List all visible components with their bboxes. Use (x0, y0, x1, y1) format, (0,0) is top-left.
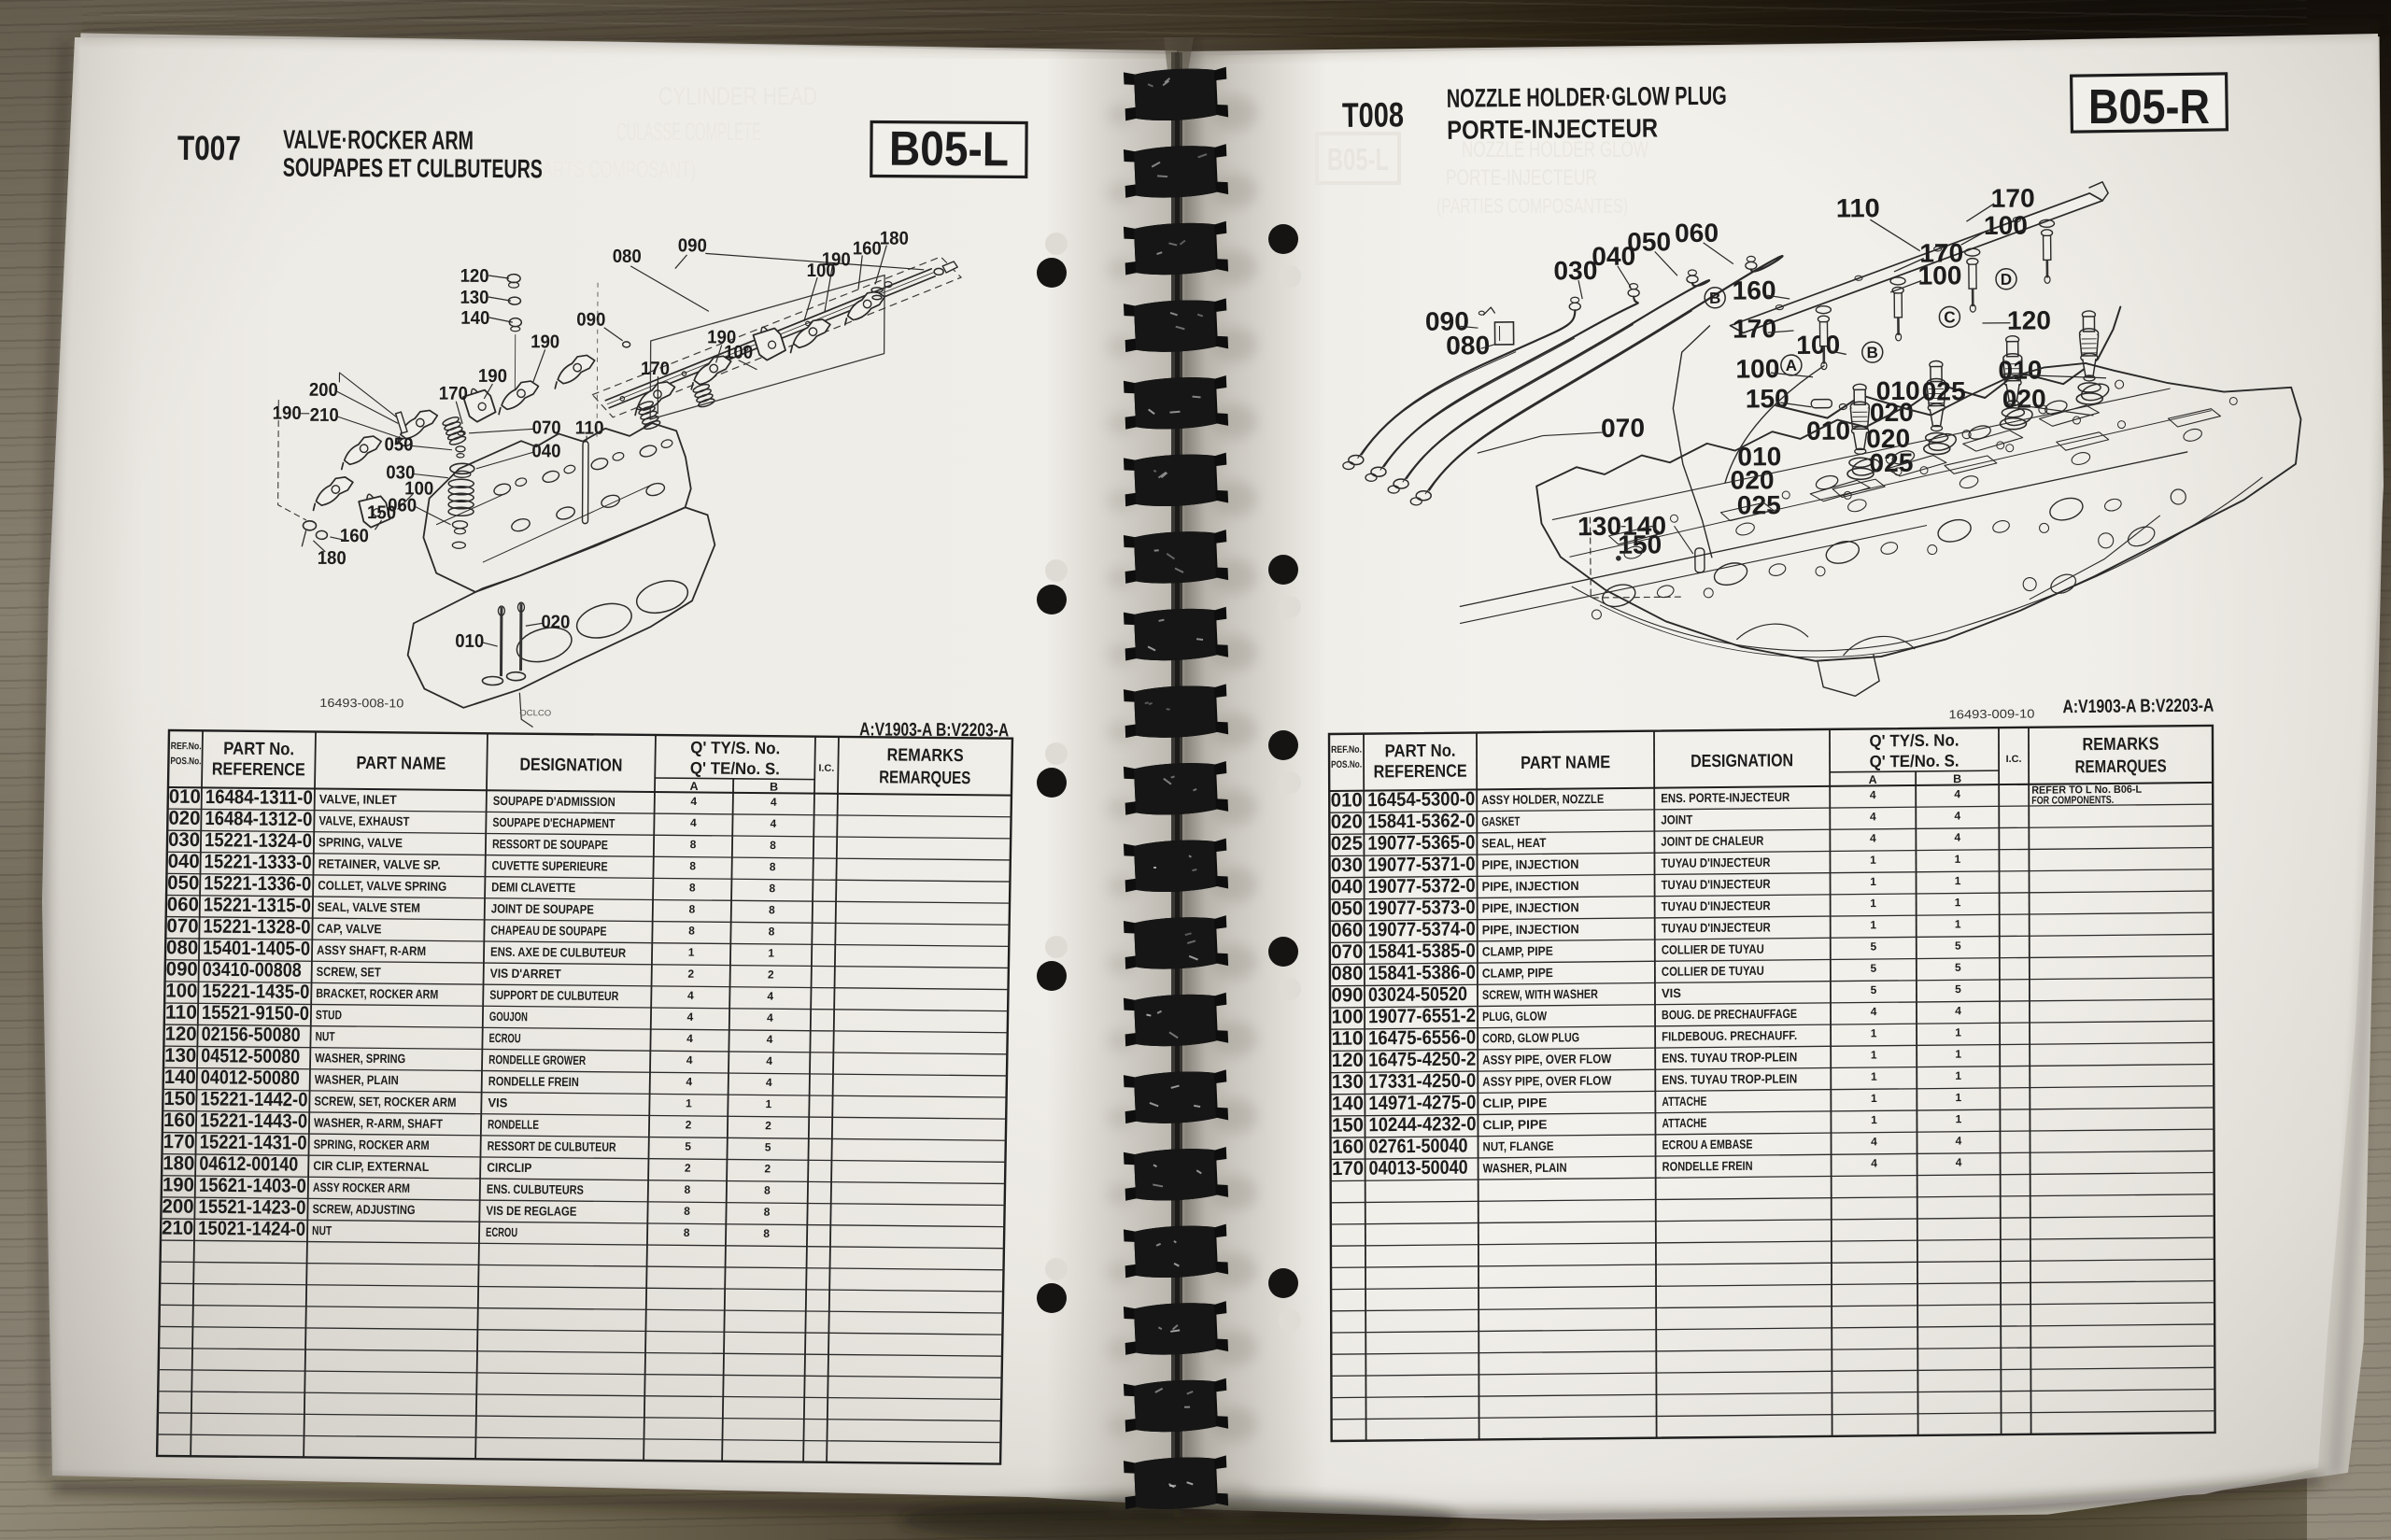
svg-text:050: 050 (1627, 227, 1671, 256)
svg-text:1: 1 (688, 946, 695, 959)
svg-text:050: 050 (384, 434, 413, 455)
svg-text:200: 200 (309, 380, 338, 401)
svg-text:ATTACHE: ATTACHE (1662, 1116, 1706, 1130)
svg-text:170: 170 (439, 384, 468, 404)
svg-text:02156-50080: 02156-50080 (201, 1024, 300, 1046)
svg-text:190: 190 (163, 1174, 194, 1195)
svg-text:REF.No.: REF.No. (1331, 744, 1362, 756)
svg-text:JOINT DE SOUPAPE: JOINT DE SOUPAPE (491, 901, 594, 916)
svg-text:15841-5385-0: 15841-5385-0 (1368, 940, 1476, 963)
svg-text:JOINT DE CHALEUR: JOINT DE CHALEUR (1661, 834, 1763, 849)
svg-text:JOINT: JOINT (1661, 812, 1693, 827)
svg-text:BRACKET, ROCKER ARM: BRACKET, ROCKER ARM (316, 986, 438, 1001)
svg-text:4: 4 (1870, 831, 1876, 844)
svg-text:REF.No.: REF.No. (171, 741, 202, 752)
svg-text:200: 200 (162, 1195, 193, 1217)
svg-text:DESIGNATION: DESIGNATION (1691, 751, 1793, 771)
svg-text:SUPPORT DE CULBUTEUR: SUPPORT DE CULBUTEUR (489, 988, 618, 1003)
svg-text:ENS. AXE DE CULBUTEUR: ENS. AXE DE CULBUTEUR (490, 945, 626, 960)
svg-text:REMARKS: REMARKS (2082, 734, 2158, 755)
svg-text:4: 4 (687, 1010, 694, 1024)
svg-text:COLLIER DE TUYAU: COLLIER DE TUYAU (1662, 964, 1764, 979)
svg-text:14971-4275-0: 14971-4275-0 (1368, 1092, 1476, 1114)
svg-text:COLLET, VALVE SPRING: COLLET, VALVE SPRING (318, 879, 446, 894)
svg-text:080: 080 (166, 937, 198, 958)
svg-text:15521-1423-0: 15521-1423-0 (198, 1196, 305, 1219)
svg-text:PART NAME: PART NAME (356, 754, 446, 774)
svg-text:1: 1 (1956, 1112, 1962, 1125)
svg-text:4: 4 (1955, 1004, 1961, 1017)
svg-text:4: 4 (1870, 788, 1876, 801)
svg-text:REFERENCE: REFERENCE (1374, 762, 1467, 783)
svg-text:100: 100 (1917, 261, 1961, 290)
svg-text:T007: T007 (177, 129, 241, 167)
svg-text:T008: T008 (1342, 95, 1404, 134)
svg-text:NUT: NUT (315, 1029, 335, 1043)
svg-text:POS.No.: POS.No. (170, 756, 201, 767)
svg-text:025: 025 (1737, 490, 1781, 519)
svg-text:190: 190 (531, 332, 559, 352)
svg-text:15021-1424-0: 15021-1424-0 (198, 1218, 305, 1240)
svg-text:1: 1 (1870, 875, 1876, 888)
svg-text:GOUJON: GOUJON (489, 1010, 528, 1024)
svg-text:190: 190 (273, 403, 302, 424)
svg-text:4: 4 (686, 1075, 692, 1088)
svg-text:15221-1443-0: 15221-1443-0 (200, 1109, 307, 1132)
svg-text:4: 4 (1871, 1135, 1877, 1148)
svg-text:15221-1315-0: 15221-1315-0 (204, 894, 311, 916)
svg-text:VIS: VIS (488, 1095, 507, 1109)
svg-text:CUVETTE SUPERIEURE: CUVETTE SUPERIEURE (492, 858, 608, 873)
svg-text:VIS D'ARRET: VIS D'ARRET (490, 967, 562, 982)
svg-text:140: 140 (460, 308, 489, 329)
svg-text:PIPE, INJECTION: PIPE, INJECTION (1482, 900, 1579, 915)
svg-text:ECROU A EMBASE: ECROU A EMBASE (1662, 1137, 1753, 1152)
svg-text:5: 5 (765, 1140, 771, 1153)
svg-text:1: 1 (1955, 853, 1961, 866)
svg-text:5: 5 (685, 1140, 691, 1153)
svg-text:ECROU: ECROU (486, 1225, 517, 1239)
svg-text:Q' TY/S. No.: Q' TY/S. No. (1869, 731, 1959, 751)
svg-text:19077-5371-0: 19077-5371-0 (1367, 854, 1475, 876)
svg-text:B: B (1953, 772, 1961, 785)
svg-text:REMARKS: REMARKS (886, 745, 963, 766)
svg-text:025: 025 (1331, 833, 1363, 855)
svg-text:15221-1333-0: 15221-1333-0 (204, 851, 311, 873)
svg-text:5: 5 (1955, 982, 1961, 996)
svg-text:VIS DE REGLAGE: VIS DE REGLAGE (486, 1204, 576, 1219)
svg-text:100: 100 (1735, 354, 1779, 383)
svg-text:PART No.: PART No. (1385, 742, 1456, 762)
svg-text:A: A (689, 780, 698, 793)
svg-text:15221-1328-0: 15221-1328-0 (203, 916, 310, 939)
svg-text:100: 100 (1332, 1006, 1364, 1027)
svg-text:8: 8 (770, 860, 776, 873)
svg-text:140: 140 (1332, 1093, 1364, 1114)
svg-text:160: 160 (340, 526, 369, 546)
svg-text:TUYAU D'INJECTEUR: TUYAU D'INJECTEUR (1661, 855, 1770, 870)
svg-text:SEAL, VALVE STEM: SEAL, VALVE STEM (318, 900, 420, 915)
svg-text:C: C (1944, 308, 1955, 326)
svg-text:VALVE, EXHAUST: VALVE, EXHAUST (318, 813, 410, 828)
svg-text:180: 180 (163, 1152, 194, 1174)
svg-text:TUYAU D'INJECTEUR: TUYAU D'INJECTEUR (1662, 877, 1771, 892)
svg-text:REMARQUES: REMARQUES (879, 768, 970, 788)
svg-text:120: 120 (2007, 305, 2051, 334)
svg-text:19077-5365-0: 19077-5365-0 (1367, 832, 1475, 855)
svg-text:100: 100 (807, 261, 836, 281)
svg-text:040: 040 (1331, 876, 1363, 897)
svg-text:8: 8 (764, 1184, 771, 1197)
svg-text:15841-5362-0: 15841-5362-0 (1367, 810, 1475, 832)
svg-text:030: 030 (168, 829, 200, 851)
svg-text:4: 4 (686, 1032, 693, 1045)
svg-text:WASHER, R-ARM, SHAFT: WASHER, R-ARM, SHAFT (314, 1116, 444, 1131)
svg-text:CIRCLIP: CIRCLIP (487, 1161, 531, 1175)
svg-text:2: 2 (687, 968, 694, 981)
svg-text:B05-L: B05-L (1327, 142, 1389, 177)
svg-text:050: 050 (167, 872, 199, 894)
svg-text:03410-00808: 03410-00808 (203, 959, 303, 982)
svg-text:Q' TY/S. No.: Q' TY/S. No. (690, 738, 780, 757)
svg-text:PIPE, INJECTION: PIPE, INJECTION (1482, 922, 1579, 937)
svg-text:170: 170 (1332, 1158, 1364, 1180)
svg-text:ASSY ROCKER ARM: ASSY ROCKER ARM (313, 1180, 410, 1195)
svg-text:4: 4 (771, 796, 777, 809)
svg-text:PART No.: PART No. (223, 740, 294, 760)
svg-text:170: 170 (1991, 183, 2035, 212)
svg-text:VIS: VIS (1662, 986, 1681, 1000)
svg-text:SOUPAPES ET CULBUTEURS: SOUPAPES ET CULBUTEURS (283, 153, 543, 184)
svg-text:2: 2 (765, 1119, 771, 1132)
svg-text:15221-1324-0: 15221-1324-0 (205, 829, 312, 852)
svg-text:1: 1 (686, 1096, 692, 1109)
svg-text:SCREW, SET, ROCKER ARM: SCREW, SET, ROCKER ARM (314, 1095, 456, 1109)
svg-text:8: 8 (764, 1206, 771, 1219)
svg-text:B: B (1709, 290, 1720, 307)
svg-text:8: 8 (770, 839, 776, 852)
svg-text:Q' TE/No. S.: Q' TE/No. S. (690, 758, 780, 778)
svg-text:WASHER, SPRING: WASHER, SPRING (315, 1051, 405, 1066)
svg-text:4: 4 (1956, 1156, 1962, 1169)
svg-text:OCLCO: OCLCO (519, 708, 551, 717)
svg-text:NOZZLE HOLDER·GLOW PLUG: NOZZLE HOLDER·GLOW PLUG (1447, 81, 1727, 113)
svg-text:8: 8 (769, 882, 775, 895)
svg-text:060: 060 (388, 495, 417, 516)
svg-text:070: 070 (1601, 414, 1645, 443)
svg-text:4: 4 (767, 990, 773, 1003)
svg-text:B: B (1867, 344, 1878, 361)
svg-text:8: 8 (690, 838, 697, 851)
svg-text:1: 1 (1955, 1091, 1961, 1104)
svg-text:1: 1 (1955, 874, 1961, 887)
svg-text:160: 160 (853, 238, 882, 259)
svg-text:VALVE, INLET: VALVE, INLET (319, 792, 398, 807)
svg-text:4: 4 (687, 989, 694, 1002)
svg-text:090: 090 (166, 958, 198, 980)
svg-text:ASSY PIPE, OVER FLOW: ASSY PIPE, OVER FLOW (1482, 1052, 1611, 1067)
svg-text:NUT: NUT (312, 1223, 332, 1237)
svg-text:150: 150 (163, 1088, 195, 1109)
svg-text:PART NAME: PART NAME (1521, 753, 1610, 773)
svg-text:130: 130 (164, 1045, 196, 1067)
svg-text:CORD, GLOW PLUG: CORD, GLOW PLUG (1482, 1030, 1579, 1045)
svg-text:2: 2 (685, 1162, 691, 1175)
svg-text:ASSY SHAFT, R-ARM: ASSY SHAFT, R-ARM (317, 943, 426, 958)
svg-text:020: 020 (1331, 812, 1363, 833)
svg-text:RONDELLE: RONDELLE (488, 1117, 539, 1132)
svg-text:160: 160 (163, 1109, 195, 1131)
svg-text:ENS. TUYAU TROP-PLEIN: ENS. TUYAU TROP-PLEIN (1662, 1050, 1797, 1065)
svg-text:1: 1 (1871, 1048, 1877, 1061)
svg-text:(PARTIES COMPOSANTES): (PARTIES COMPOSANTES) (1436, 194, 1628, 218)
svg-text:080: 080 (613, 247, 642, 267)
svg-text:(PARTS COMPOSANT): (PARTS COMPOSANT) (528, 157, 696, 183)
svg-text:CYLINDER HEAD: CYLINDER HEAD (658, 82, 817, 110)
svg-text:ENS. PORTE-INJECTEUR: ENS. PORTE-INJECTEUR (1661, 790, 1790, 805)
svg-text:120: 120 (164, 1024, 196, 1045)
svg-text:1: 1 (1870, 918, 1876, 931)
svg-text:PORTE-INJECTEUR: PORTE-INJECTEUR (1446, 165, 1597, 191)
svg-text:040: 040 (167, 851, 199, 872)
svg-text:RESSORT DE CULBUTEUR: RESSORT DE CULBUTEUR (488, 1138, 616, 1153)
svg-text:04013-50040: 04013-50040 (1369, 1157, 1468, 1180)
svg-text:A:V1903-A B:V2203-A: A:V1903-A B:V2203-A (2062, 696, 2214, 718)
svg-text:040: 040 (531, 441, 560, 461)
svg-text:110: 110 (165, 1002, 197, 1024)
svg-text:17331-4250-0: 17331-4250-0 (1368, 1070, 1476, 1093)
svg-text:120: 120 (460, 266, 489, 287)
svg-text:170: 170 (641, 359, 670, 379)
svg-text:100: 100 (724, 343, 753, 363)
svg-text:TUYAU D'INJECTEUR: TUYAU D'INJECTEUR (1662, 920, 1771, 935)
svg-text:2: 2 (686, 1118, 692, 1131)
svg-text:5: 5 (1870, 962, 1876, 975)
svg-text:030: 030 (386, 462, 415, 483)
svg-text:SPRING, ROCKER ARM: SPRING, ROCKER ARM (314, 1137, 430, 1152)
svg-text:TUYAU D'INJECTEUR: TUYAU D'INJECTEUR (1662, 898, 1771, 913)
svg-text:4: 4 (767, 1011, 773, 1024)
svg-text:STUD: STUD (316, 1008, 342, 1022)
svg-text:080: 080 (1446, 331, 1490, 360)
svg-text:1: 1 (1955, 1069, 1961, 1082)
svg-text:8: 8 (688, 925, 695, 938)
svg-text:CLIP, PIPE: CLIP, PIPE (1482, 1095, 1547, 1110)
svg-text:060: 060 (1331, 920, 1363, 941)
svg-text:1: 1 (1955, 917, 1961, 930)
svg-text:8: 8 (684, 1226, 690, 1239)
svg-text:BOUG. DE PRECHAUFFAGE: BOUG. DE PRECHAUFFAGE (1662, 1007, 1797, 1022)
svg-text:4: 4 (770, 817, 776, 830)
svg-text:4: 4 (767, 1033, 773, 1046)
svg-text:8: 8 (688, 902, 695, 915)
svg-text:100: 100 (165, 980, 197, 1001)
svg-text:04512-50080: 04512-50080 (201, 1045, 300, 1067)
svg-text:1: 1 (1871, 1026, 1877, 1039)
svg-text:B05-L: B05-L (889, 122, 1009, 177)
svg-text:070: 070 (1331, 941, 1363, 963)
svg-text:SEAL, HEAT: SEAL, HEAT (1481, 836, 1547, 851)
svg-text:16475-4250-2: 16475-4250-2 (1368, 1049, 1476, 1071)
svg-text:5: 5 (1955, 940, 1961, 953)
svg-text:150: 150 (1746, 384, 1790, 413)
svg-text:1: 1 (768, 946, 774, 959)
svg-text:080: 080 (1331, 963, 1363, 984)
svg-text:15521-9150-0: 15521-9150-0 (202, 1002, 309, 1024)
svg-text:02761-50040: 02761-50040 (1369, 1135, 1468, 1157)
svg-text:A: A (1786, 357, 1797, 374)
svg-text:VALVE·ROCKER ARM: VALVE·ROCKER ARM (283, 125, 474, 155)
svg-text:180: 180 (318, 548, 347, 569)
svg-text:180: 180 (880, 229, 909, 249)
svg-text:04612-00140: 04612-00140 (199, 1153, 298, 1176)
svg-text:1: 1 (1955, 1025, 1961, 1038)
svg-text:5: 5 (1871, 983, 1877, 996)
svg-text:16484-1312-0: 16484-1312-0 (205, 808, 312, 830)
svg-text:8: 8 (689, 859, 696, 872)
svg-text:110: 110 (1836, 193, 1880, 222)
svg-text:RETAINER, VALVE SP.: RETAINER, VALVE SP. (318, 856, 441, 871)
svg-text:100: 100 (1796, 330, 1840, 359)
svg-text:CLIP, PIPE: CLIP, PIPE (1482, 1117, 1547, 1132)
svg-text:CAP, VALVE: CAP, VALVE (317, 922, 381, 937)
svg-text:NUT, FLANGE: NUT, FLANGE (1483, 1139, 1554, 1154)
svg-text:ATTACHE: ATTACHE (1662, 1095, 1706, 1109)
svg-text:19077-5374-0: 19077-5374-0 (1368, 918, 1476, 940)
svg-text:8: 8 (769, 925, 775, 938)
svg-text:SCREW, WITH WASHER: SCREW, WITH WASHER (1482, 987, 1598, 1002)
svg-text:16493-009-10: 16493-009-10 (1948, 707, 2034, 722)
svg-text:8: 8 (689, 881, 696, 894)
svg-text:1: 1 (1871, 1070, 1877, 1083)
svg-text:SCREW, SET: SCREW, SET (317, 965, 382, 980)
svg-text:I.C.: I.C. (818, 763, 834, 774)
svg-text:1: 1 (1955, 896, 1961, 909)
svg-text:ENS. CULBUTEURS: ENS. CULBUTEURS (487, 1182, 584, 1197)
svg-text:I.C.: I.C. (2006, 754, 2022, 765)
svg-text:4: 4 (1870, 810, 1876, 823)
svg-text:090: 090 (576, 310, 605, 331)
svg-text:REFERENCE: REFERENCE (212, 759, 305, 780)
svg-text:RESSORT DE SOUPAPE: RESSORT DE SOUPAPE (492, 837, 608, 852)
svg-text:DEMI CLAVETTE: DEMI CLAVETTE (491, 880, 575, 895)
svg-text:CULASSE COMPLETE: CULASSE COMPLETE (616, 118, 761, 146)
svg-text:16475-6556-0: 16475-6556-0 (1368, 1026, 1476, 1049)
svg-text:070: 070 (166, 915, 198, 937)
svg-text:160: 160 (1332, 1137, 1364, 1158)
svg-text:CHAPEAU DE SOUPAPE: CHAPEAU DE SOUPAPE (490, 924, 606, 939)
svg-text:04012-50080: 04012-50080 (201, 1067, 300, 1089)
svg-text:1: 1 (1870, 897, 1876, 910)
svg-text:8: 8 (684, 1205, 690, 1218)
svg-text:15221-1442-0: 15221-1442-0 (200, 1088, 307, 1110)
svg-text:090: 090 (1331, 984, 1363, 1006)
svg-text:4: 4 (1871, 1005, 1877, 1018)
svg-text:8: 8 (763, 1227, 770, 1240)
svg-text:RONDELLE FREIN: RONDELLE FREIN (488, 1074, 579, 1089)
svg-text:010: 010 (1331, 789, 1363, 811)
svg-text:150: 150 (1332, 1114, 1364, 1136)
svg-text:03024-50520: 03024-50520 (1368, 983, 1467, 1006)
svg-text:ASSY HOLDER, NOZZLE: ASSY HOLDER, NOZZLE (1481, 792, 1604, 807)
svg-text:020: 020 (541, 612, 570, 632)
svg-text:PORTE-INJECTEUR: PORTE-INJECTEUR (1447, 113, 1658, 144)
svg-text:1: 1 (1870, 854, 1876, 867)
svg-text:COLLIER DE TUYAU: COLLIER DE TUYAU (1662, 942, 1764, 957)
svg-text:060: 060 (167, 894, 199, 915)
svg-text:5: 5 (1955, 961, 1961, 974)
svg-text:110: 110 (575, 418, 604, 439)
svg-text:19077-5372-0: 19077-5372-0 (1368, 875, 1476, 897)
svg-text:8: 8 (769, 903, 775, 916)
svg-text:RONDELLE GROWER: RONDELLE GROWER (488, 1053, 586, 1067)
svg-text:15621-1403-0: 15621-1403-0 (199, 1175, 306, 1197)
svg-text:4: 4 (1871, 1156, 1877, 1169)
svg-text:4: 4 (1954, 809, 1960, 822)
svg-text:4: 4 (690, 795, 697, 808)
svg-text:15221-1431-0: 15221-1431-0 (200, 1132, 307, 1154)
svg-text:SOUPAPE D'ECHAPMENT: SOUPAPE D'ECHAPMENT (492, 815, 615, 830)
svg-text:SCREW, ADJUSTING: SCREW, ADJUSTING (312, 1202, 415, 1217)
svg-text:4: 4 (766, 1076, 772, 1089)
svg-text:19077-5373-0: 19077-5373-0 (1368, 897, 1476, 919)
svg-text:4: 4 (686, 1053, 693, 1067)
svg-text:CLAMP, PIPE: CLAMP, PIPE (1482, 944, 1553, 959)
svg-text:130: 130 (1577, 512, 1621, 541)
svg-text:4: 4 (690, 816, 697, 829)
svg-text:PIPE, INJECTION: PIPE, INJECTION (1481, 857, 1578, 872)
svg-text:210: 210 (310, 405, 339, 426)
svg-text:010: 010 (455, 631, 484, 652)
svg-text:210: 210 (162, 1218, 193, 1239)
svg-text:PLUG, GLOW: PLUG, GLOW (1482, 1009, 1547, 1024)
svg-text:110: 110 (1332, 1028, 1364, 1050)
svg-text:REMARQUES: REMARQUES (2075, 756, 2167, 777)
svg-text:15221-1336-0: 15221-1336-0 (204, 872, 311, 895)
svg-text:16493-008-10: 16493-008-10 (319, 696, 403, 711)
svg-text:010: 010 (1806, 416, 1850, 445)
svg-text:FOR COMPONENTS.: FOR COMPONENTS. (2031, 795, 2114, 807)
svg-text:030: 030 (1331, 855, 1363, 876)
svg-text:POS.No.: POS.No. (1331, 759, 1362, 770)
svg-text:RONDELLE FREIN: RONDELLE FREIN (1662, 1159, 1753, 1174)
svg-text:15221-1435-0: 15221-1435-0 (202, 981, 309, 1003)
svg-text:ECROU: ECROU (488, 1031, 520, 1045)
svg-text:16484-1311-0: 16484-1311-0 (205, 786, 313, 809)
svg-text:140: 140 (164, 1067, 196, 1088)
svg-text:15401-1405-0: 15401-1405-0 (203, 938, 310, 960)
svg-text:2: 2 (768, 968, 774, 982)
svg-text:010: 010 (169, 786, 201, 808)
svg-text:060: 060 (1675, 219, 1719, 247)
svg-text:ENS. TUYAU TROP-PLEIN: ENS. TUYAU TROP-PLEIN (1662, 1072, 1797, 1087)
svg-text:10244-4232-0: 10244-4232-0 (1368, 1113, 1476, 1136)
svg-text:190: 190 (478, 366, 507, 387)
svg-text:Q' TE/No. S.: Q' TE/No. S. (1870, 752, 1959, 771)
svg-text:CLAMP, PIPE: CLAMP, PIPE (1482, 966, 1553, 981)
svg-text:1: 1 (1955, 1048, 1961, 1061)
svg-text:D: D (2001, 271, 2012, 289)
svg-text:050: 050 (1331, 897, 1363, 919)
svg-text:WASHER, PLAIN: WASHER, PLAIN (1483, 1161, 1567, 1176)
svg-text:130: 130 (460, 288, 488, 308)
svg-text:19077-6551-2: 19077-6551-2 (1368, 1005, 1476, 1027)
svg-text:CIR CLIP, EXTERNAL: CIR CLIP, EXTERNAL (313, 1159, 429, 1174)
svg-text:2: 2 (764, 1162, 771, 1175)
svg-text:B05-R: B05-R (2088, 80, 2210, 134)
svg-text:SOUPAPE D'ADMISSION: SOUPAPE D'ADMISSION (493, 794, 615, 809)
svg-text:120: 120 (1332, 1050, 1364, 1071)
